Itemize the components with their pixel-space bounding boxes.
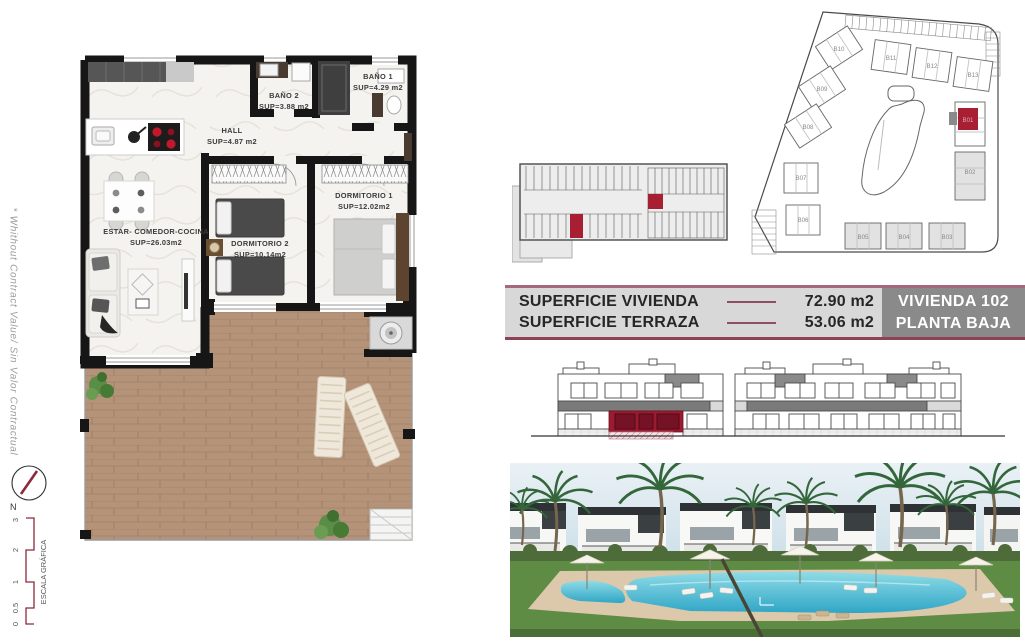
svg-text:B10: B10 bbox=[833, 46, 845, 53]
svg-text:3: 3 bbox=[11, 518, 20, 522]
terrace-steps bbox=[370, 509, 412, 540]
svg-text:B12: B12 bbox=[926, 63, 938, 70]
highlighted-storage-room bbox=[648, 194, 663, 209]
svg-text:B02: B02 bbox=[964, 169, 976, 176]
svg-text:SUP=10.14m2: SUP=10.14m2 bbox=[234, 250, 286, 259]
surface-label: SUPERFICIE TERRAZA bbox=[519, 314, 727, 332]
svg-text:SUP=4.29 m2: SUP=4.29 m2 bbox=[353, 83, 403, 92]
plan-sheet: * Whithout Contract Value/ Sin Valor Con… bbox=[0, 0, 1025, 642]
svg-text:0: 0 bbox=[11, 622, 20, 626]
unit-badge: VIVIENDA 102 PLANTA BAJA bbox=[882, 288, 1025, 337]
bedroom1-bed bbox=[334, 213, 409, 301]
svg-text:B03: B03 bbox=[941, 234, 953, 241]
leader-line bbox=[727, 301, 776, 303]
floor-plan: ESTAR- COMEDOR-COCINA SUP=26.03m2 HALL S… bbox=[78, 53, 432, 545]
svg-text:SUP=4.87 m2: SUP=4.87 m2 bbox=[207, 137, 257, 146]
surface-value: 72.90 m2 bbox=[790, 293, 874, 311]
elevation-highlight bbox=[609, 411, 683, 439]
north-compass-icon: N bbox=[2, 458, 54, 516]
svg-text:SUP=12.02m2: SUP=12.02m2 bbox=[338, 202, 390, 211]
disclaimer-note: * Whithout Contract Value/ Sin Valor Con… bbox=[8, 207, 19, 457]
leader-line bbox=[727, 322, 776, 324]
svg-text:SUP=3.88 m2: SUP=3.88 m2 bbox=[259, 102, 309, 111]
dining-table bbox=[104, 172, 154, 230]
surface-row: SUPERFICIE VIVIENDA 72.90 m2 bbox=[519, 293, 874, 311]
surface-value: 53.06 m2 bbox=[790, 314, 874, 332]
svg-text:B09: B09 bbox=[816, 86, 828, 93]
surface-row: SUPERFICIE TERRAZA 53.06 m2 bbox=[519, 314, 874, 332]
garage-plan bbox=[512, 156, 742, 266]
svg-text:B04: B04 bbox=[898, 234, 910, 241]
svg-text:0.5: 0.5 bbox=[11, 603, 20, 613]
unit-floor: PLANTA BAJA bbox=[896, 313, 1012, 335]
svg-text:SUP=26.03m2: SUP=26.03m2 bbox=[130, 238, 182, 247]
svg-text:DORMITORIO 2: DORMITORIO 2 bbox=[231, 239, 289, 248]
surface-label: SUPERFICIE VIVIENDA bbox=[519, 293, 727, 311]
development-photo bbox=[510, 463, 1020, 637]
svg-text:B13: B13 bbox=[967, 72, 979, 79]
svg-text:ESTAR- COMEDOR-COCINA: ESTAR- COMEDOR-COCINA bbox=[103, 227, 209, 236]
summary-bar: SUPERFICIE VIVIENDA 72.90 m2 SUPERFICIE … bbox=[505, 285, 1025, 340]
elevation-drawing bbox=[513, 356, 1015, 456]
highlighted-parking-space bbox=[570, 214, 583, 238]
svg-text:N: N bbox=[10, 502, 17, 512]
unit-name: VIVIENDA 102 bbox=[898, 291, 1009, 313]
svg-text:B06: B06 bbox=[797, 217, 809, 224]
graphic-scale: 3 2 1 0.5 0 ESCALA GRÁFICA bbox=[4, 512, 54, 640]
svg-text:BAÑO 2: BAÑO 2 bbox=[269, 91, 299, 100]
svg-text:DORMITORIO 1: DORMITORIO 1 bbox=[335, 191, 393, 200]
svg-text:B01: B01 bbox=[962, 117, 974, 124]
svg-text:1: 1 bbox=[11, 580, 20, 584]
svg-text:ESCALA GRÁFICA: ESCALA GRÁFICA bbox=[39, 540, 48, 605]
svg-text:B08: B08 bbox=[802, 124, 814, 131]
svg-text:B11: B11 bbox=[886, 55, 897, 62]
outdoor-shower bbox=[370, 317, 412, 349]
svg-text:B07: B07 bbox=[795, 175, 807, 182]
svg-text:HALL: HALL bbox=[222, 126, 243, 135]
svg-text:2: 2 bbox=[11, 548, 20, 552]
elevation-building-right bbox=[735, 359, 961, 436]
surface-rows: SUPERFICIE VIVIENDA 72.90 m2 SUPERFICIE … bbox=[505, 288, 882, 337]
svg-text:B05: B05 bbox=[857, 234, 869, 241]
svg-text:BAÑO 1: BAÑO 1 bbox=[363, 72, 393, 81]
site-plan: B01 B02 B03 B04 B05 B06 B07 B08 B09 B10 … bbox=[742, 2, 1024, 264]
